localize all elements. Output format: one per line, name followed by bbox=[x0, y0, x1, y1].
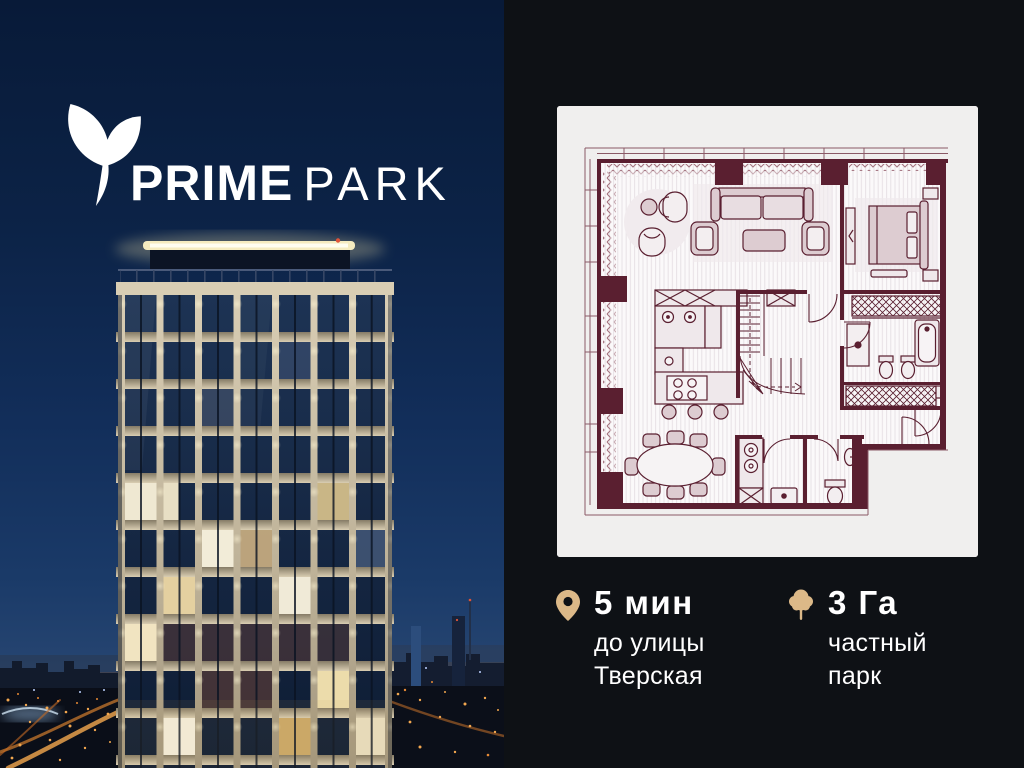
stat-park: 3 Га частный парк bbox=[788, 585, 983, 692]
brand-name-primary: PRIME bbox=[130, 155, 293, 211]
brand-logo: PRIMEPARK bbox=[56, 104, 452, 206]
stat-park-text: 3 Га частный парк bbox=[828, 585, 983, 692]
brand-name: PRIMEPARK bbox=[130, 154, 452, 212]
stat-park-value: 3 Га bbox=[828, 585, 983, 621]
brand-name-secondary: PARK bbox=[303, 157, 452, 210]
apartment-floor-plan bbox=[557, 106, 978, 557]
stat-distance: 5 мин до улицы Тверская bbox=[556, 585, 749, 692]
stat-distance-value: 5 мин bbox=[594, 585, 749, 621]
stat-distance-label: до улицы Тверская bbox=[594, 627, 749, 692]
location-pin-icon bbox=[556, 590, 580, 621]
info-panel: 5 мин до улицы Тверская 3 Га частный пар… bbox=[504, 0, 1024, 768]
stat-park-label: частный парк bbox=[828, 627, 983, 692]
tree-icon bbox=[788, 589, 814, 622]
floor-plan-card bbox=[557, 106, 978, 557]
page: PRIMEPARK bbox=[0, 0, 1024, 768]
building-photo-panel: PRIMEPARK bbox=[0, 0, 504, 768]
stat-distance-text: 5 мин до улицы Тверская bbox=[594, 585, 749, 692]
